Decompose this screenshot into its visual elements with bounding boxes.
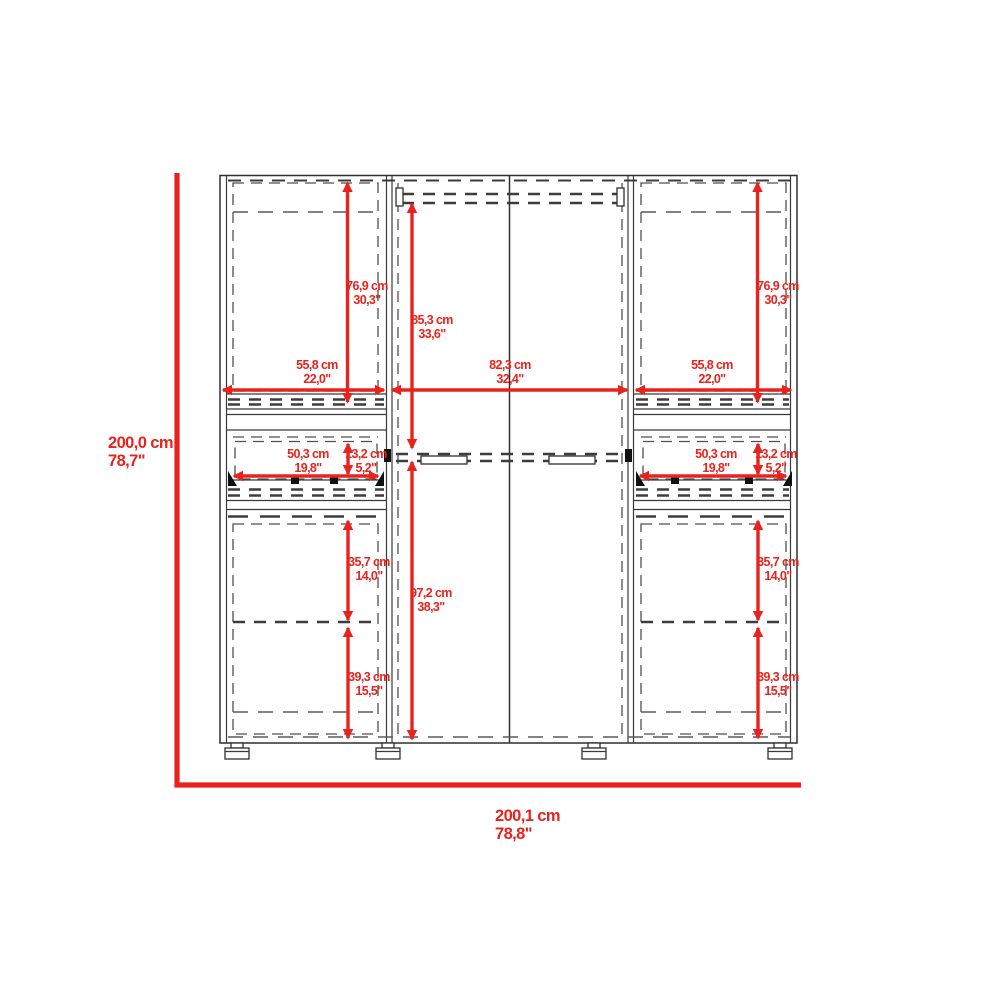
overall-height-cm-label: 200,0 cm (108, 434, 173, 452)
right-upper-shelf-in-label: 14,0" (764, 569, 792, 583)
right-drawer-height-cm-label: 13,2 cm (755, 447, 797, 461)
feet (225, 743, 792, 759)
center-width-in-label: 32,4" (496, 372, 524, 386)
left-door-height-dimension: 76,9 cm 30,3" (346, 183, 388, 402)
center-lower-height-cm-label: 97,2 cm (410, 586, 452, 600)
wardrobe-diagram-svg: 200,0 cm 78,7" 200,1 cm 78,8" 76,9 cm 30… (0, 0, 999, 1000)
left-drawer-width-cm-label: 50,3 cm (287, 447, 329, 461)
left-upper-shelf-in-label: 14,0" (355, 569, 383, 583)
left-drawer-height-cm-label: 13,2 cm (345, 447, 387, 461)
right-drawer-width-in-label: 19,8" (702, 461, 730, 475)
foot (225, 743, 249, 759)
left-lower-shelf-cm-label: 39,3 cm (348, 670, 390, 684)
left-drawer-height-dimension: 13,2 cm 5,2" (345, 444, 387, 475)
right-lower-shelf-in-label: 15,5" (764, 684, 792, 698)
left-width-dimension: 55,8 cm 22,0" (223, 358, 384, 390)
center-upper-height-cm-label: 85,3 cm (411, 313, 453, 327)
foot (376, 743, 400, 759)
foot (582, 743, 606, 759)
right-width-in-label: 22,0" (698, 372, 726, 386)
center-right-door-handle (549, 456, 595, 464)
foot (768, 743, 792, 759)
center-lower-height-dimension: 97,2 cm 38,3" (410, 462, 452, 739)
right-width-dimension: 55,8 cm 22,0" (636, 358, 791, 390)
center-width-cm-label: 82,3 cm (489, 358, 531, 372)
center-unit (384, 183, 632, 736)
left-drawer-height-in-label: 5,2" (356, 461, 378, 475)
overall-width-cm-label: 200,1 cm (495, 807, 560, 825)
right-upper-shelf-cm-label: 35,7 cm (757, 555, 799, 569)
right-width-cm-label: 55,8 cm (691, 358, 733, 372)
center-upper-height-in-label: 33,6" (418, 327, 446, 341)
left-door-height-cm-label: 76,9 cm (346, 279, 388, 293)
center-left-door-handle (421, 456, 467, 464)
right-lower-shelf-cm-label: 39,3 cm (757, 670, 799, 684)
right-upper-shelf-dimension: 35,7 cm 14,0" (757, 521, 799, 620)
left-door-height-in-label: 30,3" (353, 293, 381, 307)
center-lower-height-in-label: 38,3" (417, 600, 445, 614)
right-lower-shelf-dimension: 39,3 cm 15,5" (757, 628, 799, 738)
overall-height-in-label: 78,7" (108, 452, 145, 470)
left-lower-shelf-dimension: 39,3 cm 15,5" (348, 628, 390, 738)
right-door-height-cm-label: 76,9 cm (757, 279, 799, 293)
overall-width-in-label: 78,8" (495, 825, 532, 843)
center-width-dimension: 82,3 cm 32,4" (392, 358, 627, 390)
right-drawer-height-in-label: 5,2" (766, 461, 788, 475)
right-door-height-in-label: 30,3" (764, 293, 792, 307)
dimension-diagram: 200,0 cm 78,7" 200,1 cm 78,8" 76,9 cm 30… (0, 0, 999, 1000)
right-door-height-dimension: 76,9 cm 30,3" (757, 183, 799, 402)
left-upper-shelf-cm-label: 35,7 cm (348, 555, 390, 569)
left-width-cm-label: 55,8 cm (296, 358, 338, 372)
rod-bracket-right (625, 449, 632, 462)
center-upper-height-dimension: 85,3 cm 33,6" (411, 204, 453, 448)
left-drawer-width-in-label: 19,8" (294, 461, 322, 475)
left-width-in-label: 22,0" (303, 372, 331, 386)
right-drawer-width-cm-label: 50,3 cm (695, 447, 737, 461)
left-lower-shelf-in-label: 15,5" (355, 684, 383, 698)
left-upper-shelf-dimension: 35,7 cm 14,0" (348, 521, 390, 620)
